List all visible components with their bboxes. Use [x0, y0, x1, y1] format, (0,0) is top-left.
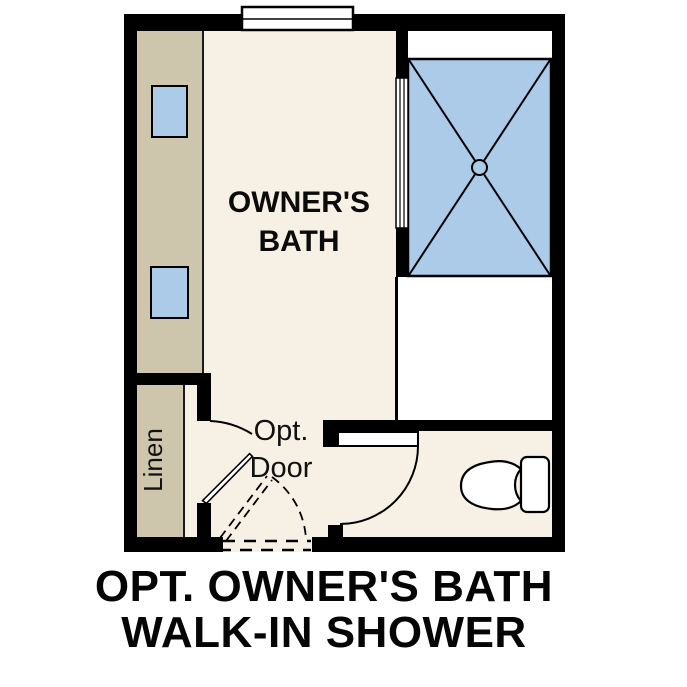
wall-toilet-room-stub	[328, 525, 343, 537]
toilet-icon	[461, 457, 549, 512]
owners-bath-label-line1: OWNER'S	[228, 186, 370, 219]
vanity-counter-top	[137, 31, 203, 373]
toilet-bowl	[461, 461, 521, 509]
vanity-counter	[137, 31, 203, 373]
wall-right	[552, 14, 565, 552]
wall-linen-top	[124, 373, 211, 385]
wall-partition-thin	[395, 277, 398, 420]
wall-door-stub-upper	[197, 385, 211, 421]
wall-bottom-left	[124, 537, 223, 552]
floor-plan-canvas: OWNER'S BATH Opt. Door Linen OPT. OWNER'…	[0, 0, 687, 687]
vanity-sink-icon	[151, 267, 188, 318]
shower-drain-icon	[472, 160, 487, 175]
opt-door-label-line2: Door	[250, 452, 313, 484]
below-shower-area	[398, 277, 552, 420]
opt-door-label-line1: Opt.	[254, 415, 309, 447]
wall-shower-left-lower	[396, 228, 408, 277]
wall-toilet-room-jamb	[323, 420, 338, 447]
owners-bath-label-line2: BATH	[258, 225, 339, 258]
floor-plan-svg: OWNER'S BATH Opt. Door Linen OPT. OWNER'…	[0, 0, 687, 687]
vanity-sink-icon	[152, 86, 187, 137]
wall-shower-left-upper	[396, 31, 408, 78]
glass-panel-frame	[396, 78, 408, 228]
wall-door-stub-lower	[197, 503, 211, 537]
caption-line-2: WALK-IN SHOWER	[121, 608, 526, 657]
wall-bottom-right	[312, 537, 565, 552]
wall-left	[124, 14, 137, 552]
shower-glass-panel-icon	[396, 78, 408, 228]
wall-toilet-room-top	[323, 420, 552, 431]
shower-entry-band	[408, 31, 552, 59]
door-leaf	[338, 432, 418, 446]
linen-closet-label: Linen	[138, 428, 168, 492]
window-icon	[242, 7, 353, 30]
caption-line-1: OPT. OWNER'S BATH	[95, 562, 553, 611]
toilet-tank	[521, 457, 549, 512]
walk-in-shower	[408, 59, 551, 276]
